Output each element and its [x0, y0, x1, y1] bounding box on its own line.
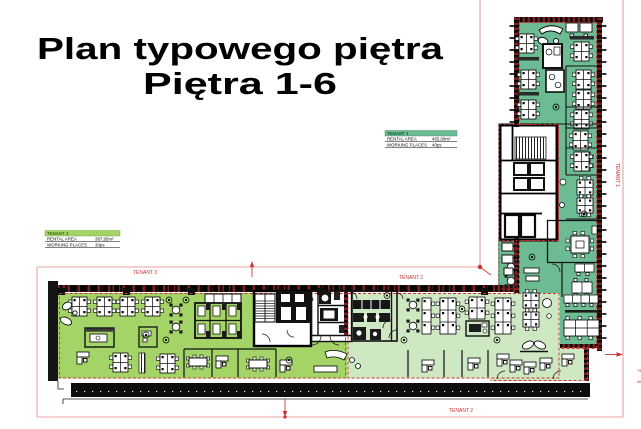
- svg-text:TENANT 3: TENANT 3: [47, 231, 69, 236]
- svg-text:TENANT 1: TENANT 1: [387, 131, 409, 136]
- svg-text:TENANT 3: TENANT 3: [133, 270, 157, 276]
- svg-text:RENTAL AREA: RENTAL AREA: [47, 237, 77, 242]
- svg-text:RENTAL AREA: RENTAL AREA: [387, 137, 417, 142]
- svg-text:TENANT 2: TENANT 2: [399, 275, 423, 281]
- svg-text:TENANT 2: TENANT 2: [637, 368, 641, 373]
- svg-text:40ps: 40ps: [432, 143, 442, 148]
- svg-text:Piętra 1-6: Piętra 1-6: [143, 66, 337, 101]
- svg-text:TENANT 2: TENANT 2: [449, 408, 473, 414]
- svg-text:TENANT 1: TENANT 1: [614, 163, 620, 187]
- svg-text:WORKING PLACES: WORKING PLACES: [47, 243, 87, 248]
- svg-text:30ps: 30ps: [95, 243, 105, 248]
- svg-text:465,08m²: 465,08m²: [637, 379, 641, 384]
- svg-text:WORKING PLACES: WORKING PLACES: [387, 143, 427, 148]
- svg-text:Plan typowego piętra: Plan typowego piętra: [37, 31, 444, 66]
- svg-text:465,08m²: 465,08m²: [432, 137, 451, 142]
- svg-text:387,95m²: 387,95m²: [95, 237, 114, 242]
